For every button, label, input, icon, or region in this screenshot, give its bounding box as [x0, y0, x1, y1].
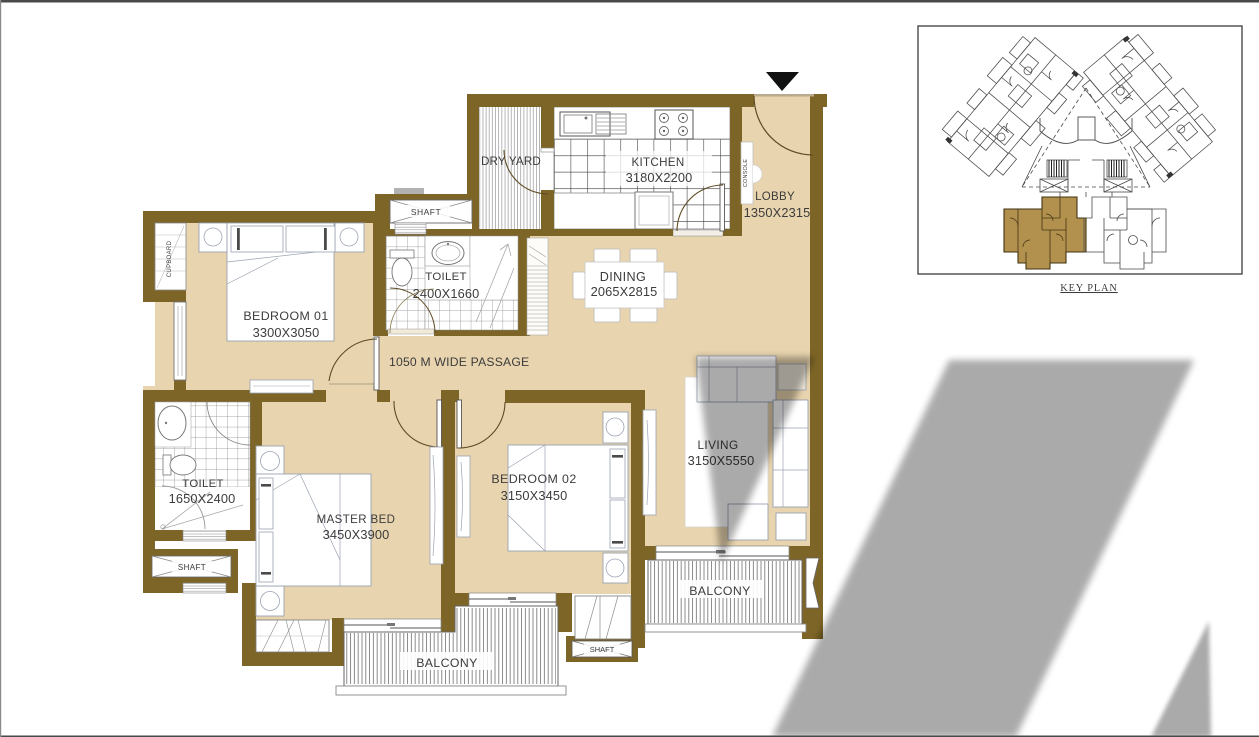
svg-text:CUPBOARD: CUPBOARD [167, 240, 173, 277]
svg-text:SHAFT: SHAFT [411, 207, 441, 217]
svg-text:TOILET: TOILET [182, 478, 223, 490]
svg-text:2400X1660: 2400X1660 [413, 286, 480, 301]
svg-text:SHAFT: SHAFT [178, 563, 206, 572]
svg-text:SHAFT: SHAFT [590, 645, 615, 654]
svg-text:3300X3050: 3300X3050 [253, 325, 320, 340]
svg-text:DINING: DINING [600, 270, 646, 284]
svg-text:BEDROOM 02: BEDROOM 02 [491, 472, 576, 486]
svg-text:KITCHEN: KITCHEN [632, 156, 685, 169]
svg-text:BEDROOM 01: BEDROOM 01 [243, 309, 328, 323]
svg-text:LOBBY: LOBBY [755, 191, 795, 203]
svg-text:1650X2400: 1650X2400 [169, 491, 236, 506]
svg-text:1350X2315: 1350X2315 [744, 205, 811, 220]
svg-text:1050 M WIDE PASSAGE: 1050 M WIDE PASSAGE [389, 355, 529, 369]
svg-text:3450X3900: 3450X3900 [323, 527, 390, 542]
svg-text:CONSOLE: CONSOLE [743, 159, 749, 187]
svg-text:3180X2200: 3180X2200 [626, 170, 693, 185]
svg-text:MASTER BED: MASTER BED [317, 514, 396, 526]
svg-text:TOILET: TOILET [425, 271, 466, 283]
svg-text:BALCONY: BALCONY [416, 656, 478, 670]
svg-text:DRY YARD: DRY YARD [481, 155, 541, 168]
svg-text:2065X2815: 2065X2815 [591, 284, 658, 299]
svg-text:BALCONY: BALCONY [689, 584, 751, 598]
svg-text:3150X3450: 3150X3450 [501, 488, 568, 503]
svg-text:KEY PLAN: KEY PLAN [1060, 283, 1117, 294]
